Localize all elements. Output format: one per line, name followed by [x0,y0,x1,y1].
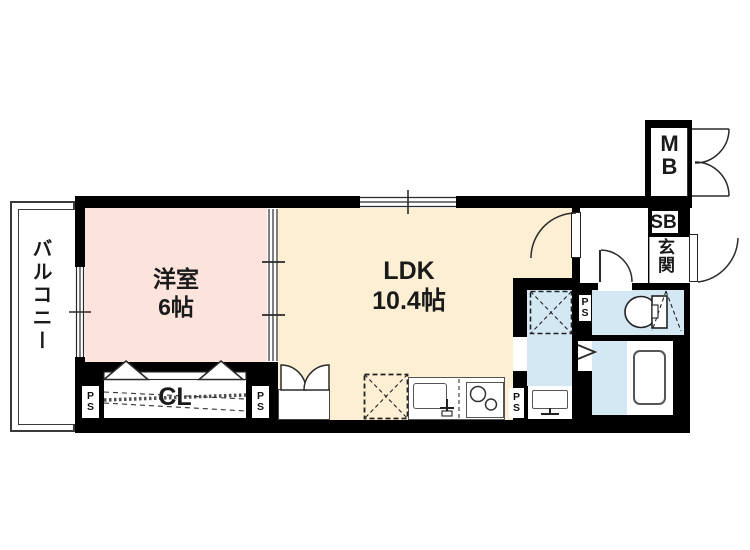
entrance-door-swing-icon [698,238,738,282]
entrance-door-icon [689,234,698,282]
closet-label: CL [135,383,215,412]
washbasin-icon [532,390,568,409]
pipe-space-2: P S [252,386,269,418]
pipe-space-1: P S [82,386,99,418]
ldk-door-icon [571,212,581,258]
storage-cabinet [278,389,330,420]
ldk-name: LDK [329,256,489,286]
washroom-doorway [513,337,527,371]
mb-line1: M [651,132,688,155]
kitchen-sink-icon [413,383,447,409]
meter-box-doors-icon [692,129,729,196]
western-room-name: 洋室 [111,266,241,294]
ldk-window-icon [360,196,456,208]
western-room-label: 洋室 6帖 [111,266,241,321]
western-room-size: 6帖 [111,294,241,322]
stove-icon [466,382,504,418]
ps-label: S [87,402,94,413]
ldk-size: 10.4帖 [329,286,489,316]
entrance-label: 玄関 [657,238,677,283]
pipe-space-4: P S [579,295,591,321]
meter-box-label: M B [651,132,688,178]
hallway [580,208,648,283]
mb-line2: B [651,155,688,178]
bathroom-doorway [578,341,592,371]
ps-label: S [513,403,520,414]
toilet-doorway [598,283,632,291]
toilet-room [592,290,684,335]
pipe-space-3: P S [509,388,524,418]
ldk-label: LDK 10.4帖 [329,256,489,316]
shoe-box-label: SB [649,212,678,234]
ps-label: S [581,308,588,319]
balcony-label: バルコニー [33,238,55,418]
balcony-window-icon [75,267,85,357]
floor-plan: P S P S P S P S [0,0,750,550]
ps-label: S [257,402,264,413]
bathtub-icon [633,350,666,405]
sliding-partition-icon [267,208,278,362]
washroom [527,290,572,386]
